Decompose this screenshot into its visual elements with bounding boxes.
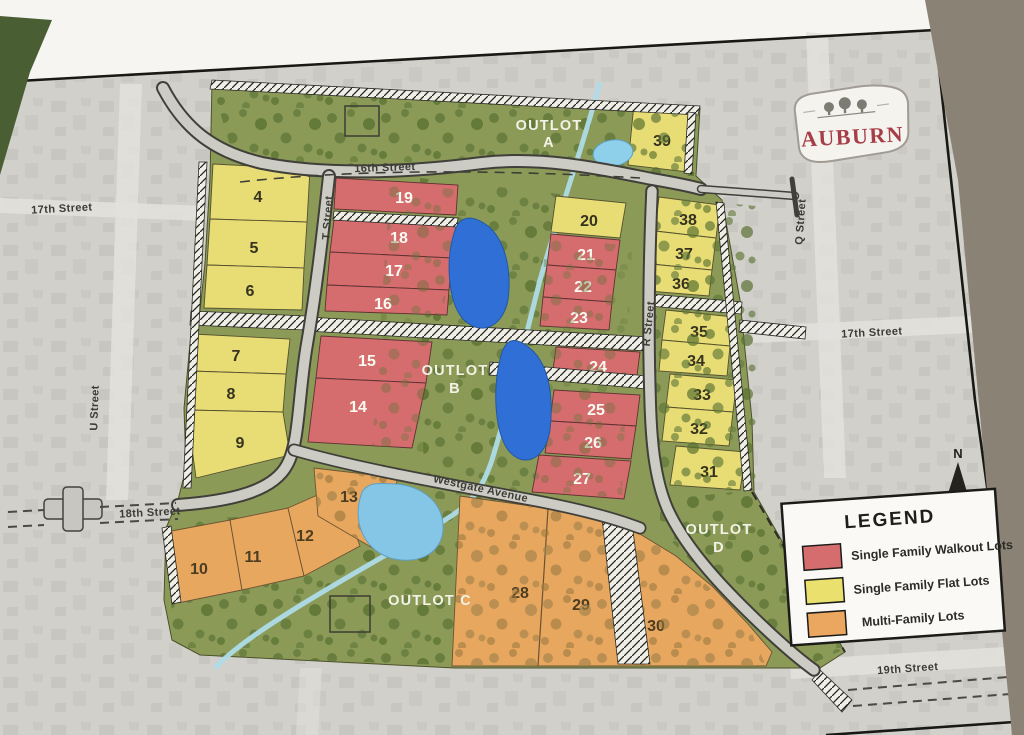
svg-text:12: 12: [296, 528, 314, 545]
lot-7: 7: [190, 334, 290, 374]
svg-text:6: 6: [246, 283, 255, 300]
aerial-street-minor: [296, 668, 322, 735]
svg-text:B: B: [449, 381, 461, 397]
svg-text:5: 5: [250, 240, 259, 257]
photo-of-plat-map: 4 5 6 7 8 9 10 11 12 13 19 18 17 16 15 1…: [0, 0, 1024, 735]
plat-map-svg: 4 5 6 7 8 9 10 11 12 13 19 18 17 16 15 1…: [0, 0, 1024, 735]
auburn-logo: AUBURN: [794, 84, 911, 164]
street-label-16th: 16th Street: [354, 161, 416, 175]
svg-text:7: 7: [232, 348, 241, 365]
street-label-u: U Street: [88, 385, 102, 431]
legend-swatch-flat: [805, 578, 845, 605]
legend-swatch-walkout: [802, 544, 842, 571]
svg-text:D: D: [713, 540, 725, 556]
legend: LEGEND Single Family Walkout Lots Single…: [781, 488, 1018, 646]
svg-text:A: A: [543, 135, 555, 151]
compass-n-label: N: [953, 446, 962, 461]
outlot-b-label: OUTLOT: [422, 363, 489, 379]
svg-text:20: 20: [580, 213, 598, 230]
lot-6: 6: [204, 265, 304, 310]
outlot-a-label: OUTLOT: [516, 118, 583, 134]
svg-text:9: 9: [236, 435, 245, 452]
svg-text:15: 15: [358, 353, 376, 370]
outlot-d-label: OUTLOT: [686, 522, 753, 538]
svg-text:14: 14: [349, 399, 367, 416]
legend-swatch-multi: [807, 611, 847, 638]
svg-text:11: 11: [245, 549, 262, 566]
outlot-c-label: OUTLOT C: [388, 593, 472, 609]
lot-8: 8: [187, 371, 286, 412]
svg-text:10: 10: [190, 561, 208, 578]
lot-20: 20: [551, 196, 626, 238]
svg-text:8: 8: [227, 386, 236, 403]
svg-text:4: 4: [254, 189, 263, 206]
lot-5: 5: [207, 219, 307, 268]
